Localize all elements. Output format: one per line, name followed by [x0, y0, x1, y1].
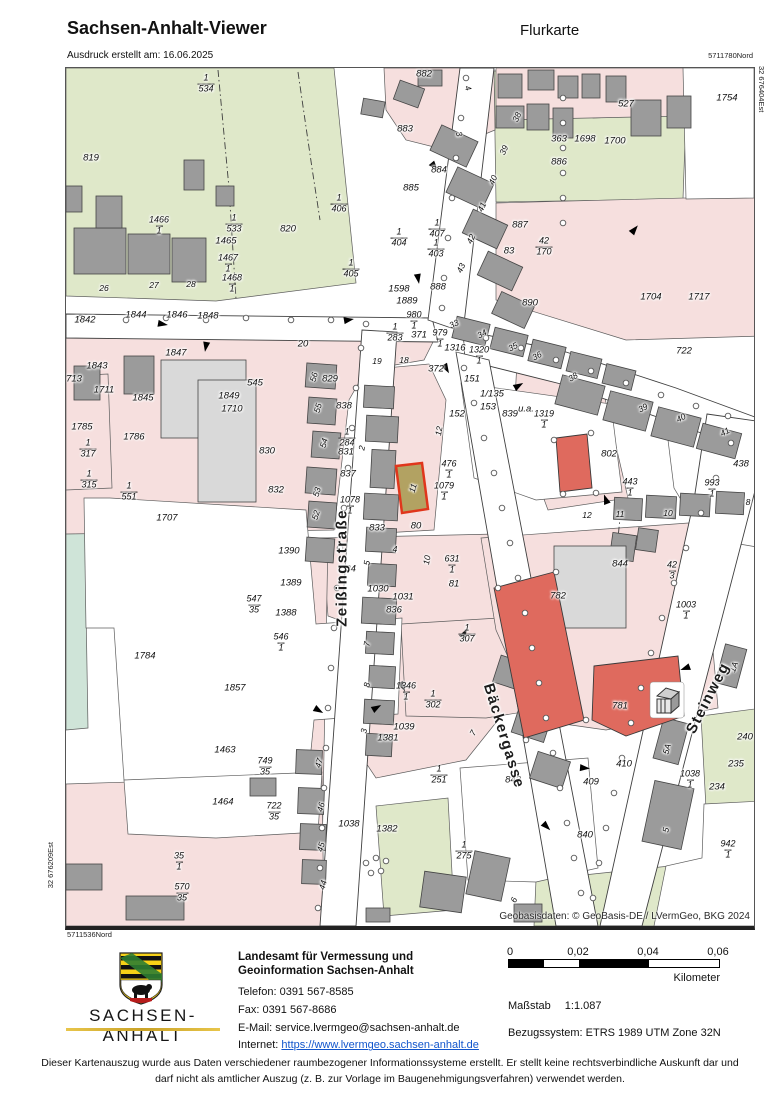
parcel-label: 844: [612, 559, 628, 569]
parcel-label: 1845: [132, 393, 153, 403]
parcel-label: 1849: [218, 391, 239, 401]
house-number-label: 26: [99, 284, 108, 293]
parcel-label-fraction: 14671: [218, 254, 238, 275]
parcel-label: 1030: [367, 584, 388, 594]
frame-coord-left: 32 676209Est: [46, 842, 55, 888]
internet-link[interactable]: https://www.lvermgeo.sachsen-anhalt.de: [281, 1039, 479, 1051]
parcel-label-fraction: 1302: [424, 690, 441, 711]
map-labels-layer: 8198208828838848851598188988837113163721…: [66, 68, 754, 926]
parcel-label: 887: [512, 220, 528, 230]
house-number-label: 18: [399, 356, 408, 365]
parcel-label: 1382: [376, 824, 397, 834]
house-number-label: 52: [311, 509, 322, 520]
parcel-label: 1707: [156, 513, 177, 523]
street-name-label: Bäckergasse: [481, 682, 527, 791]
house-number-label: 7: [468, 729, 478, 737]
parcel-label-fraction: 1533: [225, 214, 242, 235]
parcel-label: 234: [709, 782, 725, 792]
parcel-label: 1889: [396, 296, 417, 306]
house-number-label: 27: [149, 281, 158, 290]
house-number-label: 5: [362, 560, 371, 566]
parcel-label: 1842: [74, 315, 95, 325]
house-number-label: 54: [319, 437, 330, 448]
parcel-label: 1698: [574, 134, 595, 144]
house-number-label: 42: [465, 233, 477, 245]
house-number-label: 12: [434, 426, 444, 437]
flurkarte-print-page: Sachsen-Anhalt-Viewer Flurkarte Ausdruck…: [0, 0, 780, 1108]
house-number-label: 5A: [662, 743, 673, 755]
scale-tick: 0,04: [637, 946, 658, 958]
house-number-label: 6: [509, 896, 519, 904]
parcel-label-fraction: 1307: [458, 624, 475, 645]
house-number-label: 4: [393, 545, 398, 554]
house-number-label: 8: [362, 682, 371, 688]
parcel-label-fraction: 9421: [720, 840, 735, 861]
parcel-label-fraction: 13461: [396, 682, 416, 703]
agency-line2: Geoinformation Sachsen-Anhalt: [238, 964, 414, 978]
email-line: E-Mail: service.lvermgeo@sachsen-anhalt.…: [238, 1020, 479, 1038]
parcel-label-fraction: 9791: [432, 329, 447, 350]
house-number-label: 28: [186, 280, 195, 289]
parcel-label: 83: [504, 246, 515, 256]
parcel-label: 81: [449, 579, 460, 589]
parcel-label: 1463: [214, 745, 235, 755]
house-number-label: 19: [372, 357, 381, 366]
house-number-label: 53: [312, 486, 323, 497]
phone-line: Telefon: 0391 567-8585: [238, 984, 479, 1002]
house-number-label: 45: [316, 841, 327, 852]
house-number-label: 47: [314, 757, 325, 768]
house-number-label: 3: [359, 728, 368, 734]
footer: SACHSEN-ANHALT Landesamt für Vermessung …: [0, 944, 780, 1054]
parcel-label: 1389: [280, 578, 301, 588]
scale-ratio: Maßstab1:1.087: [508, 1000, 616, 1012]
reference-system: Bezugssystem: ETRS 1989 UTM Zone 32N: [508, 1027, 721, 1039]
parcel-label: 372: [428, 364, 444, 374]
parcel-label-fraction: 1315: [80, 470, 97, 491]
parcel-label: 20: [298, 339, 309, 349]
parcel-label: 1316: [444, 343, 465, 353]
parcel-label-fraction: 42170: [535, 237, 552, 258]
parcel-label: 838: [336, 401, 352, 411]
frame-coord-right: 32 676404Est: [757, 66, 766, 112]
page-title: Sachsen-Anhalt-Viewer: [67, 18, 267, 39]
parcel-label: 1717: [688, 292, 709, 302]
parcel-label: u.a.: [518, 404, 534, 414]
parcel-label: 831: [338, 447, 354, 457]
house-number-label: 12: [582, 511, 591, 520]
parcel-label: 830: [259, 446, 275, 456]
scale-value: 1:1.087: [565, 1000, 602, 1012]
parcel-label: 833: [369, 523, 385, 533]
scale-tick: 0,02: [567, 946, 588, 958]
parcel-label: 1388: [275, 608, 296, 618]
parcel-label: 151: [464, 374, 480, 384]
email-address: service.lvermgeo@sachsen-anhalt.de: [275, 1022, 459, 1034]
parcel-label-fraction: 10381: [680, 770, 700, 791]
contact-block: Telefon: 0391 567-8585 Fax: 0391 567-868…: [238, 984, 479, 1055]
house-number-label: 11: [616, 510, 625, 519]
parcel-label: 1848: [197, 311, 218, 321]
parcel-label: 781: [612, 701, 628, 711]
parcel-label: 1464: [212, 797, 233, 807]
parcel-label: 829: [322, 374, 338, 384]
house-number-label: 44: [318, 879, 329, 890]
house-number-label: 11: [408, 483, 418, 494]
parcel-label: 1857: [224, 683, 245, 693]
parcel-label: 836: [386, 605, 402, 615]
parcel-label: 1/135: [480, 389, 504, 399]
parcel-label-fraction: 1406: [330, 194, 347, 215]
disclaimer-text: Dieser Kartenauszug wurde aus Daten vers…: [40, 1055, 740, 1088]
parcel-label: 839: [502, 409, 518, 419]
house-number-label: 33: [448, 318, 460, 330]
parcel-label: 722: [676, 346, 692, 356]
street-name-label: Zeißingstraße: [335, 509, 350, 627]
sachsen-anhalt-coat-of-arms-icon: [118, 952, 164, 1006]
parcel-label: 545: [247, 378, 263, 388]
parcel-label: 1390: [278, 546, 299, 556]
parcel-label-fraction: 1405: [342, 259, 359, 280]
internet-line: Internet: https://www.lvermgeo.sachsen-a…: [238, 1037, 479, 1055]
house-number-label: 34: [476, 328, 488, 340]
parcel-label: 1785: [71, 422, 92, 432]
parcel-label: 840: [577, 830, 593, 840]
street-name-label: Steinweg: [684, 660, 733, 736]
parcel-label: 802: [601, 449, 617, 459]
fax-line: Fax: 0391 567-8686: [238, 1002, 479, 1020]
parcel-label-fraction: 1407: [428, 219, 445, 240]
parcel-label: 832: [268, 485, 284, 495]
parcel-label-fraction: 14661: [149, 216, 169, 237]
parcel-label: 371: [411, 330, 427, 340]
parcel-label: 1465: [215, 236, 236, 246]
parcel-label-fraction: 72235: [266, 802, 281, 823]
parcel-label-fraction: 74935: [257, 757, 272, 778]
parcel-label-fraction: 10031: [676, 601, 696, 622]
parcel-label: 885: [403, 183, 419, 193]
map-title: Flurkarte: [520, 22, 579, 39]
print-date: Ausdruck erstellt am: 16.06.2025: [67, 50, 213, 61]
parcel-label: 886: [551, 157, 567, 167]
house-number-label: 39: [498, 144, 510, 156]
house-number-label: 2: [357, 445, 366, 451]
house-number-label: 5: [661, 827, 670, 833]
parcel-label: 410: [616, 759, 632, 769]
parcel-label: 363: [551, 134, 567, 144]
agency-line1: Landesamt für Vermessung und: [238, 950, 414, 964]
parcel-label-fraction: 14681: [222, 274, 242, 295]
parcel-label: 240: [737, 732, 753, 742]
parcel-label: 1784: [134, 651, 155, 661]
parcel-label-fraction: 1551: [120, 482, 137, 503]
parcel-label-fraction: 13191: [534, 410, 554, 431]
parcel-label: 1700: [604, 136, 625, 146]
parcel-label: 1038: [338, 819, 359, 829]
parcel-label: 1031: [392, 592, 413, 602]
parcel-label: 890: [522, 298, 538, 308]
house-number-label: 35: [507, 341, 519, 353]
parcel-label: 1598: [388, 284, 409, 294]
parcel-label: 882: [416, 69, 432, 79]
parcel-label: 888: [430, 282, 446, 292]
house-number-label: 40: [487, 174, 499, 186]
parcel-label-fraction: 4431: [622, 478, 637, 499]
house-number-label: 36: [531, 350, 543, 362]
house-number-label: 41: [476, 201, 488, 213]
house-number-label: 40: [675, 412, 687, 424]
scale-bar-graphic: [508, 959, 720, 968]
parcel-label: 152: [449, 409, 465, 419]
parcel-label: 820: [280, 224, 296, 234]
parcel-label: 1381: [377, 733, 398, 743]
house-number-label: 3: [454, 130, 464, 137]
parcel-label-fraction: 1534: [197, 74, 214, 95]
parcel-label-fraction: 1251: [430, 765, 447, 786]
parcel-label: 235: [728, 759, 744, 769]
scale-bar: 0 0,02 0,04 0,06 Kilometer: [508, 946, 748, 984]
scale-tick: 0,06: [707, 946, 728, 958]
parcel-label-fraction: 4761: [441, 460, 456, 481]
parcel-label-fraction: 1404: [390, 228, 407, 249]
scale-ticks: 0 0,02 0,04 0,06: [508, 946, 748, 959]
cadastral-map: 8198208828838848851598188988837113163721…: [65, 67, 755, 930]
parcel-label-fraction: 54735: [246, 595, 261, 616]
parcel-label-fraction: 5461: [273, 633, 288, 654]
parcel-label-fraction: 13201: [469, 346, 489, 367]
house-number-label: 38: [511, 111, 523, 123]
house-number-label: 38: [567, 371, 580, 383]
frame-coord-top-right: 5711780Nord: [708, 51, 753, 60]
house-number-label: 46: [316, 801, 327, 812]
scale-unit: Kilometer: [508, 972, 720, 984]
parcel-label: 1843: [86, 361, 107, 371]
parcel-label-fraction: 9931: [704, 479, 719, 500]
parcel-label-fraction: 351: [174, 852, 184, 873]
parcel-label: 884: [431, 165, 447, 175]
parcel-label: 782: [550, 591, 566, 601]
logo-wordmark: SACHSEN-ANHALT: [66, 1006, 220, 1046]
house-number-label: 56: [309, 371, 320, 382]
parcel-label: 1710: [221, 404, 242, 414]
house-number-label: 39: [637, 402, 649, 414]
house-number-label: 10: [422, 555, 432, 566]
parcel-label: 409: [583, 777, 599, 787]
parcel-label-fraction: 1284: [338, 428, 355, 449]
parcel-label: 80: [411, 521, 422, 531]
parcel-label: 1844: [125, 310, 146, 320]
house-number-label: 4: [463, 84, 473, 91]
parcel-label: 883: [397, 124, 413, 134]
agency-name: Landesamt für Vermessung und Geoinformat…: [238, 950, 414, 979]
parcel-label-fraction: 423: [667, 561, 677, 582]
map-attribution: Geobasisdaten: © GeoBasis-DE / LVermGeo,…: [499, 911, 750, 922]
logo-gold-rule: [66, 1028, 220, 1031]
parcel-label-fraction: 6311: [444, 555, 459, 576]
parcel-label: 153: [480, 402, 496, 412]
parcel-label: 713: [66, 374, 82, 384]
parcel-label: 1786: [123, 432, 144, 442]
parcel-label: 1711: [94, 385, 114, 395]
parcel-label: 1754: [716, 93, 737, 103]
parcel-label: 527: [618, 99, 634, 109]
parcel-label: 1847: [165, 348, 186, 358]
parcel-label: 1704: [640, 292, 661, 302]
parcel-label-fraction: 1403: [427, 239, 444, 260]
parcel-label: 1039: [393, 722, 414, 732]
house-number-label: 55: [313, 402, 324, 413]
parcel-label: 819: [83, 153, 99, 163]
parcel-label-fraction: 57035: [174, 883, 189, 904]
parcel-label-fraction: 1283: [386, 323, 403, 344]
house-number-label: 43: [455, 262, 467, 274]
house-number-label: 8: [746, 498, 751, 507]
house-number-label: 41: [719, 426, 731, 438]
house-number-label: 7: [362, 641, 371, 647]
parcel-label: 438: [733, 459, 749, 469]
parcel-label-fraction: 9801: [406, 311, 421, 332]
parcel-label-fraction: 1275: [455, 841, 472, 862]
parcel-label: 837: [340, 469, 356, 479]
frame-coord-bottom-left: 5711536Nord: [67, 930, 112, 939]
house-number-label: 10: [663, 509, 672, 518]
parcel-label: 1846: [166, 310, 187, 320]
parcel-label-fraction: 10791: [434, 482, 454, 503]
parcel-label-fraction: 1317: [79, 439, 96, 460]
scale-tick: 0: [507, 946, 513, 958]
